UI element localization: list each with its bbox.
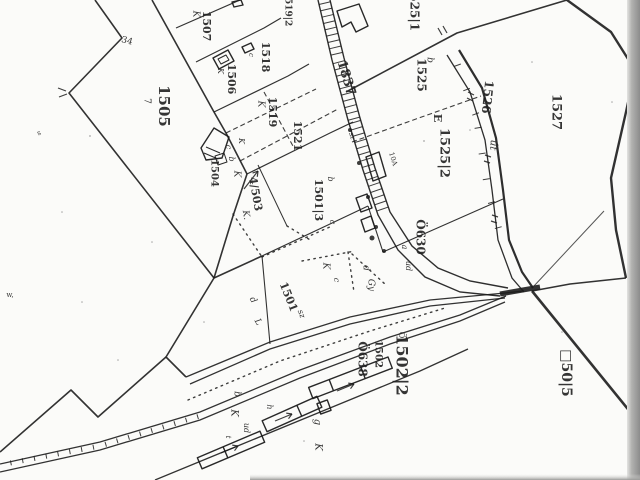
building bbox=[361, 216, 375, 232]
tick-mark bbox=[472, 113, 479, 115]
map-label-1506: 1506 bbox=[225, 64, 238, 95]
blob bbox=[370, 236, 375, 241]
tick-mark bbox=[329, 46, 341, 49]
map-label-7: 7 bbox=[142, 98, 152, 104]
scan-blobs bbox=[348, 128, 386, 253]
boundary-bottom-band bbox=[155, 349, 468, 480]
speck bbox=[117, 359, 119, 361]
map-label-sz: sz bbox=[347, 131, 357, 141]
map-label-34: 34 bbox=[120, 35, 134, 48]
tick-mark bbox=[331, 52, 343, 55]
map-label-k: K bbox=[256, 100, 266, 109]
speck bbox=[303, 440, 305, 442]
tick-mark bbox=[371, 189, 382, 193]
tick-pair bbox=[438, 26, 447, 35]
strip-divider bbox=[297, 405, 302, 416]
tick-mark bbox=[58, 451, 59, 456]
tick-mark bbox=[128, 435, 129, 440]
tick-mark bbox=[140, 432, 141, 437]
map-label-d: d bbox=[361, 265, 371, 271]
map-label-k: K bbox=[229, 408, 240, 417]
speck bbox=[561, 331, 563, 333]
speck bbox=[89, 135, 91, 137]
road-high-edge-b bbox=[190, 298, 505, 384]
map-label-1507: 1507 bbox=[200, 11, 213, 42]
strip-divider bbox=[329, 380, 333, 391]
building bbox=[232, 0, 243, 7]
tick-mark bbox=[349, 120, 360, 123]
map-label-k: K bbox=[191, 10, 201, 19]
map-label-1525: 1525 bbox=[415, 58, 429, 91]
blob bbox=[357, 161, 361, 165]
blob bbox=[366, 195, 370, 199]
map-label-1521: 1521 bbox=[291, 121, 304, 152]
tick-mark bbox=[162, 425, 163, 430]
tick-mark bbox=[475, 127, 482, 128]
tick-mark bbox=[197, 414, 198, 419]
building-hatch bbox=[204, 147, 220, 159]
parcel-line bbox=[262, 256, 270, 344]
tick-mark bbox=[369, 182, 380, 186]
tick-mark bbox=[151, 428, 152, 433]
map-label-1502: 1502 bbox=[373, 340, 384, 368]
dotted-line bbox=[302, 251, 355, 261]
map-label-b: b bbox=[425, 57, 435, 63]
map-label-e: E bbox=[431, 114, 444, 122]
map-label-ö630: Ö630 bbox=[414, 219, 430, 255]
tick-mark bbox=[351, 127, 362, 130]
tick-mark bbox=[483, 179, 490, 180]
paper-specks bbox=[61, 61, 613, 442]
tick-mark bbox=[117, 438, 118, 443]
map-label-ud: ud bbox=[242, 423, 251, 433]
map-label-k: K bbox=[216, 67, 225, 75]
tick-mark bbox=[320, 8, 332, 11]
speck bbox=[61, 211, 63, 213]
map-label-1505: 1505 bbox=[155, 85, 173, 127]
map-label-b: b bbox=[227, 156, 236, 161]
map-label-gy: Gy bbox=[366, 279, 376, 292]
tick-mark bbox=[232, 445, 238, 446]
tick-mark bbox=[357, 145, 368, 148]
speck bbox=[81, 301, 83, 303]
map-label-15252: 1525|2 bbox=[437, 128, 452, 178]
map-label-s: s bbox=[36, 128, 42, 137]
map-label-4503: 4/503 bbox=[246, 176, 265, 212]
map-label-15022: 1502|2 bbox=[393, 334, 412, 395]
tick-mark bbox=[93, 445, 94, 450]
map-label-c: c bbox=[224, 145, 233, 150]
parcel-1527-bottom bbox=[532, 278, 626, 291]
map-label-l: L bbox=[251, 316, 263, 327]
corner-mark bbox=[58, 88, 67, 97]
map-label-b: b bbox=[326, 176, 335, 181]
tick-mark bbox=[185, 418, 186, 423]
building bbox=[218, 55, 229, 64]
map-label-k: K bbox=[237, 137, 246, 145]
tick-mark bbox=[373, 195, 384, 199]
map-label-1504: 1504 bbox=[209, 159, 220, 187]
tick-mark bbox=[81, 447, 82, 452]
road-1837 bbox=[318, 0, 508, 296]
tick-mark bbox=[46, 454, 47, 459]
blob bbox=[374, 225, 378, 229]
map-label-ud: ud bbox=[404, 261, 413, 271]
building bbox=[337, 4, 368, 32]
tick-mark bbox=[359, 152, 370, 155]
dotted-line bbox=[233, 214, 262, 257]
map-label-c: c bbox=[328, 220, 337, 225]
cadastral-map-canvas: 15051507K1506K1518c1519K1519|215211525|1… bbox=[0, 0, 640, 480]
speck bbox=[531, 61, 533, 63]
scan-edge-right bbox=[627, 0, 640, 480]
map-label-t: t bbox=[224, 436, 232, 439]
tick-mark bbox=[325, 27, 337, 30]
speck bbox=[469, 129, 471, 131]
map-label-c: c bbox=[332, 278, 341, 283]
map-label-ö638: Ö638 bbox=[356, 341, 372, 377]
tick-mark bbox=[69, 449, 70, 454]
diagonal-southeast-road-edge bbox=[532, 291, 640, 424]
map-label-15013: 1501|3 bbox=[312, 179, 325, 221]
map-label-d: d bbox=[247, 295, 259, 305]
tick-mark bbox=[319, 2, 331, 5]
tick-mark bbox=[346, 111, 358, 114]
tick-mark bbox=[454, 64, 461, 66]
map-label-sz: sz bbox=[296, 308, 308, 320]
map-label-1519: 1519 bbox=[266, 97, 279, 128]
speck bbox=[423, 140, 425, 142]
tick-mark bbox=[174, 421, 175, 426]
map-label-k: K bbox=[321, 262, 331, 271]
tick-mark bbox=[328, 40, 340, 43]
building bbox=[242, 43, 254, 53]
tick-mark bbox=[105, 442, 106, 447]
tick-mark bbox=[343, 98, 355, 101]
tick-mark bbox=[326, 33, 338, 36]
tick-mark bbox=[479, 153, 486, 154]
parcel-line bbox=[368, 206, 383, 252]
map-label-k: K. bbox=[240, 209, 252, 221]
speck bbox=[611, 101, 613, 103]
tick-mark bbox=[345, 105, 357, 108]
map-label-w: w, bbox=[6, 291, 13, 299]
map-label-15192: 1519|2 bbox=[283, 0, 293, 26]
map-label-g: g bbox=[312, 419, 323, 425]
map-label-1518: 1518 bbox=[259, 42, 272, 73]
tick-mark bbox=[348, 117, 360, 120]
scanned-map-page: 15051507K1506K1518c1519K1519|215211525|1… bbox=[0, 0, 640, 480]
road-lower-left bbox=[0, 287, 540, 472]
tick-mark bbox=[323, 21, 335, 24]
map-label-10a: 10A bbox=[387, 151, 399, 168]
dashed-line bbox=[352, 96, 481, 142]
parcel-line bbox=[214, 256, 262, 278]
scan-edge-bottom bbox=[250, 474, 640, 480]
map-label-a: a bbox=[400, 245, 409, 250]
map-label-út: út bbox=[487, 139, 499, 152]
parcel-top-right-boundary bbox=[346, 0, 567, 92]
tick-mark bbox=[377, 207, 388, 211]
parcel-labels-layer: 15051507K1506K1518c1519K1519|215211525|1… bbox=[6, 0, 574, 451]
map-label-c: c bbox=[247, 53, 255, 57]
blob bbox=[382, 249, 386, 253]
map-label-505: □50|5 bbox=[558, 349, 574, 397]
dotted-line bbox=[262, 226, 332, 257]
map-label-h: h bbox=[265, 404, 274, 409]
map-label-k: K bbox=[313, 442, 324, 451]
map-label-1501: 1501 bbox=[277, 280, 301, 313]
outer-boundary-left-zigzag bbox=[69, 0, 214, 278]
tick-mark bbox=[322, 14, 334, 17]
map-label-k: K bbox=[232, 170, 242, 179]
map-label-1527: 1527 bbox=[549, 94, 564, 130]
parcel-1527-right-boundary bbox=[567, 0, 635, 278]
tick-mark bbox=[286, 413, 292, 414]
parcel-line bbox=[214, 174, 247, 278]
dotted-line bbox=[348, 252, 354, 292]
boundary-southwest bbox=[166, 278, 214, 377]
map-label-b: b bbox=[232, 391, 242, 397]
tick-pair bbox=[491, 215, 498, 223]
road-1837-west-edge bbox=[318, 0, 500, 296]
road-low-edge-b bbox=[0, 302, 505, 472]
tick-mark bbox=[375, 201, 386, 205]
speck bbox=[203, 321, 205, 323]
map-label-15251: 1525|1 bbox=[408, 0, 422, 31]
junction-spur bbox=[534, 211, 604, 286]
speck bbox=[151, 241, 153, 243]
